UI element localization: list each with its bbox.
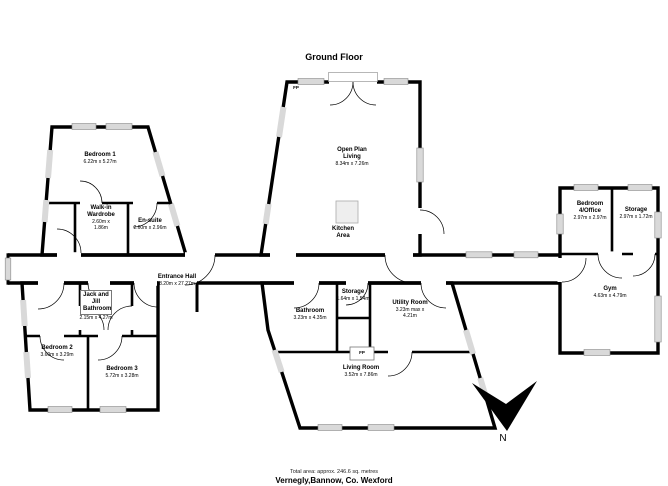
- room-dims: 1.64m x 1.54m: [323, 296, 383, 302]
- room-label-open-plan-living: Open Plan Living 8.34m x 7.26m: [335, 147, 369, 167]
- room-name: Walk-in Wardrobe: [81, 205, 121, 219]
- room-name: Living Room: [341, 365, 381, 372]
- room-dims: 4.63m x 4.79m: [580, 293, 640, 299]
- double-door-panel: [329, 73, 378, 82]
- room-dims: 8.34m x 7.26m: [335, 161, 369, 167]
- fireplace-label-living-room: FP: [359, 350, 365, 355]
- room-name-box: Jack and Jill Bathroom: [80, 290, 112, 315]
- floor-plan-drawing: [0, 0, 668, 486]
- room-label-bedroom2: Bedroom 2 3.60m x 3.29m: [27, 345, 87, 358]
- room-label-storage-right: Storage 2.97m x 1.72m: [606, 207, 666, 220]
- room-name: Bedroom 4/Office: [570, 201, 610, 215]
- room-label-bathroom: Bathroom 3.23m x 4.35m: [280, 308, 340, 321]
- room-label-walk-in-wardrobe: Walk-in Wardrobe 2.60m x 1.86m: [81, 205, 121, 231]
- room-label-bedroom4-office: Bedroom 4/Office 2.97m x 2.97m: [570, 201, 610, 221]
- total-area-text: Total area: approx. 246.6 sq. metres: [0, 469, 668, 475]
- room-outline-bedroom1-block: [42, 127, 186, 255]
- kitchen-island: [336, 201, 358, 223]
- room-dims: 3.23m max x 4.21m: [394, 307, 426, 319]
- room-name: Jack and Jill Bathroom: [83, 292, 109, 313]
- room-label-entrance-hall: Entrance Hall 8.20m x 27.27m: [157, 274, 197, 287]
- room-outline-living-block: [262, 283, 495, 428]
- room-dims: 2.60m x 2.96m: [120, 225, 180, 231]
- room-dims: 5.72m x 3.28m: [92, 373, 152, 379]
- room-label-en-suite: En-suite 2.60m x 2.96m: [120, 218, 180, 231]
- floor-plan-page: Ground Floor Bedroom 1 6.22m x 5.27m Wal…: [0, 0, 668, 486]
- address-text: Vernegly,Bannow, Co. Wexford: [0, 476, 668, 485]
- room-dims: 8.20m x 27.27m: [157, 281, 197, 287]
- room-name: Storage: [323, 289, 383, 296]
- room-dims: 2.15m x 4.27m: [76, 315, 116, 321]
- room-name: Gym: [580, 286, 640, 293]
- room-name: Entrance Hall: [157, 274, 197, 281]
- room-dims: 3.23m x 4.35m: [280, 315, 340, 321]
- room-label-storage-mid: Storage 1.64m x 1.54m: [323, 289, 383, 302]
- room-label-bedroom3: Bedroom 3 5.72m x 3.28m: [92, 366, 152, 379]
- footer: Total area: approx. 246.6 sq. metres Ver…: [0, 469, 668, 485]
- fireplace-label-open-plan: FP: [293, 85, 299, 90]
- room-name: Bedroom 1: [70, 152, 130, 159]
- room-dims: 2.97m x 2.97m: [570, 215, 610, 221]
- room-label-living-room: Living Room 3.52m x 7.86m: [341, 365, 381, 378]
- room-dims: 6.22m x 5.27m: [70, 159, 130, 165]
- room-name: Bathroom: [280, 308, 340, 315]
- room-dims: 2.60m x 1.86m: [86, 219, 116, 231]
- room-label-bedroom1: Bedroom 1 6.22m x 5.27m: [70, 152, 130, 165]
- room-dims: 2.97m x 1.72m: [606, 214, 666, 220]
- room-dims: 3.52m x 7.86m: [341, 372, 381, 378]
- room-name: Open Plan Living: [335, 147, 369, 161]
- north-label: N: [499, 433, 506, 444]
- room-label-kitchen-area: Kitchen Area: [326, 226, 360, 240]
- room-name: Bedroom 2: [27, 345, 87, 352]
- room-name: Kitchen Area: [326, 226, 360, 240]
- room-name: Storage: [606, 207, 666, 214]
- page-title: Ground Floor: [305, 52, 363, 62]
- room-dims: 3.60m x 3.29m: [27, 352, 87, 358]
- room-name: Bedroom 3: [92, 366, 152, 373]
- room-name: Utility Room: [390, 300, 430, 307]
- room-label-utility-room: Utility Room 3.23m max x 4.21m: [390, 300, 430, 319]
- room-label-jack-and-jill-bathroom: Jack and Jill Bathroom 2.15m x 4.27m: [76, 290, 116, 321]
- room-label-gym: Gym 4.63m x 4.79m: [580, 286, 640, 299]
- room-name: En-suite: [120, 218, 180, 225]
